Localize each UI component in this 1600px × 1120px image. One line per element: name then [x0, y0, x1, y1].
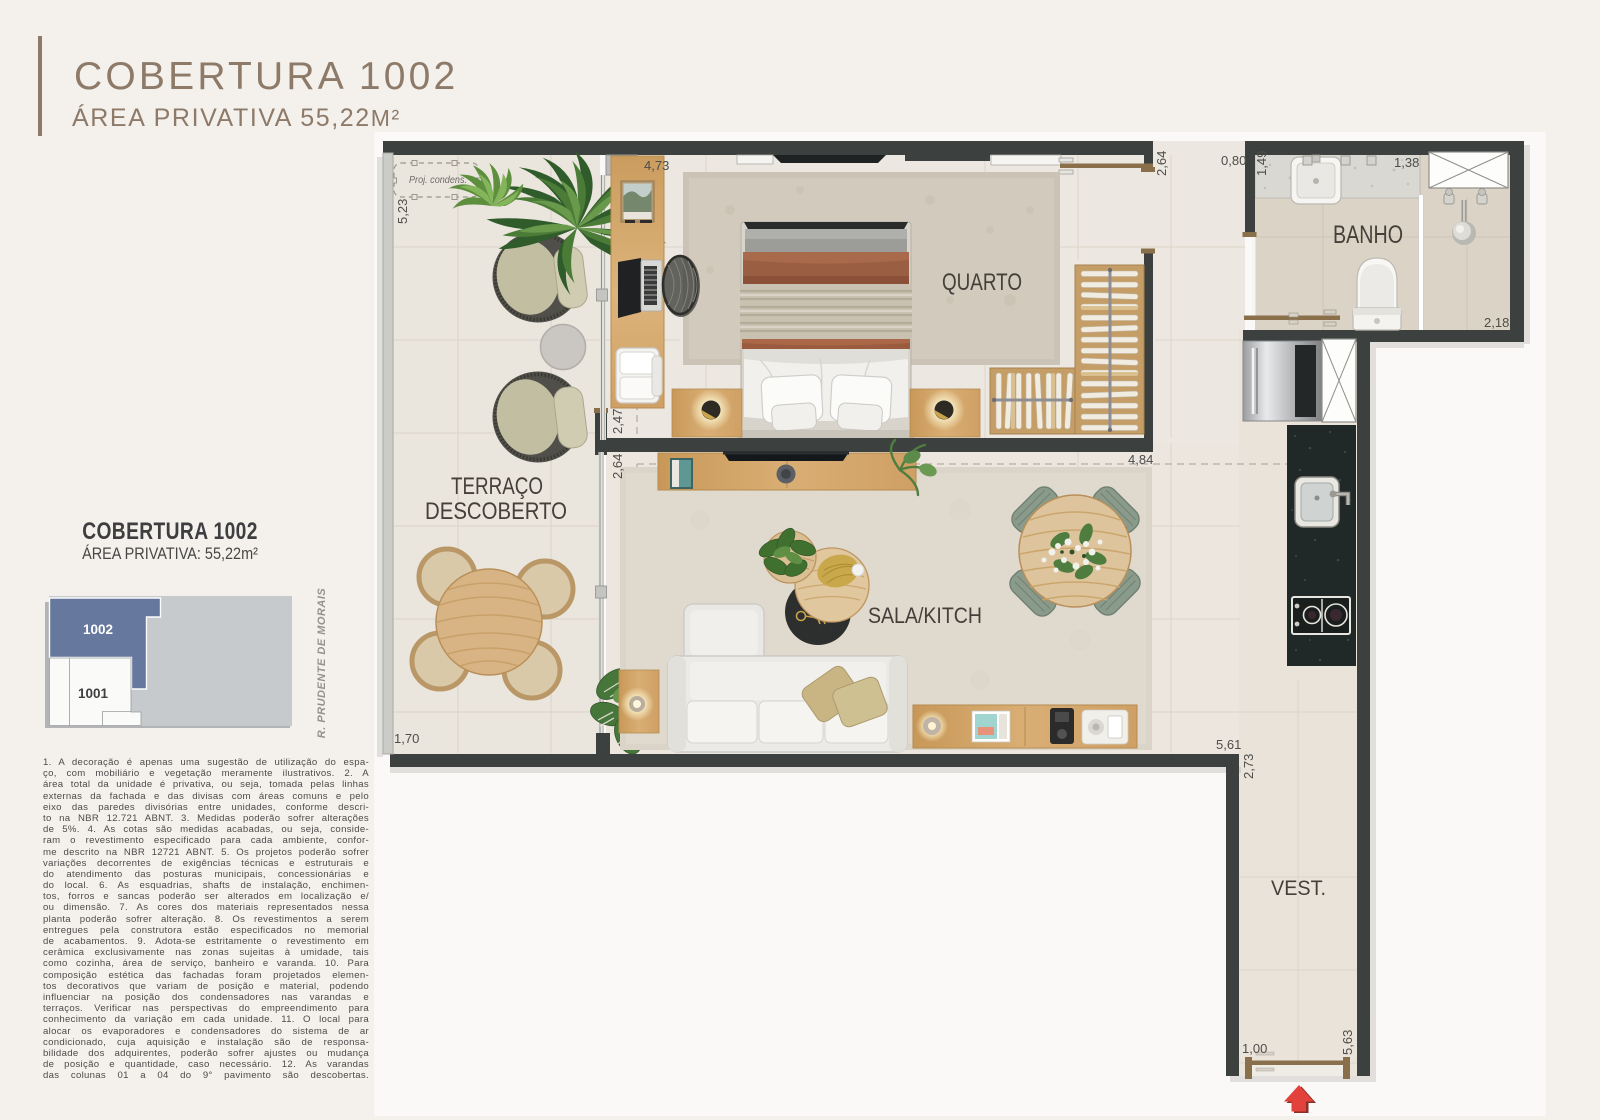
svg-text:1,49: 1,49 [1254, 151, 1269, 176]
svg-text:BANHO: BANHO [1333, 221, 1403, 249]
svg-text:QUARTO: QUARTO [942, 269, 1022, 296]
svg-text:5,61: 5,61 [1216, 737, 1241, 752]
svg-text:2,64: 2,64 [1154, 151, 1169, 176]
svg-text:5,23: 5,23 [395, 199, 410, 224]
svg-text:2,18: 2,18 [1484, 315, 1509, 330]
svg-text:VEST.: VEST. [1271, 877, 1326, 900]
svg-text:2,73: 2,73 [1241, 754, 1256, 779]
svg-text:DESCOBERTO: DESCOBERTO [425, 498, 567, 525]
svg-text:1,38: 1,38 [1394, 155, 1419, 170]
svg-text:Proj. condens.: Proj. condens. [409, 174, 467, 186]
svg-text:0,80: 0,80 [1221, 153, 1246, 168]
svg-text:4,84: 4,84 [1128, 452, 1153, 467]
svg-text:2,47: 2,47 [610, 409, 625, 434]
svg-text:5,63: 5,63 [1340, 1030, 1355, 1055]
svg-text:SALA/KITCH: SALA/KITCH [868, 603, 982, 628]
svg-text:4,73: 4,73 [644, 158, 669, 173]
svg-text:1,00: 1,00 [1242, 1041, 1267, 1056]
svg-text:TERRAÇO: TERRAÇO [451, 473, 543, 500]
svg-text:1,70: 1,70 [394, 731, 419, 746]
svg-text:2,64: 2,64 [610, 454, 625, 479]
